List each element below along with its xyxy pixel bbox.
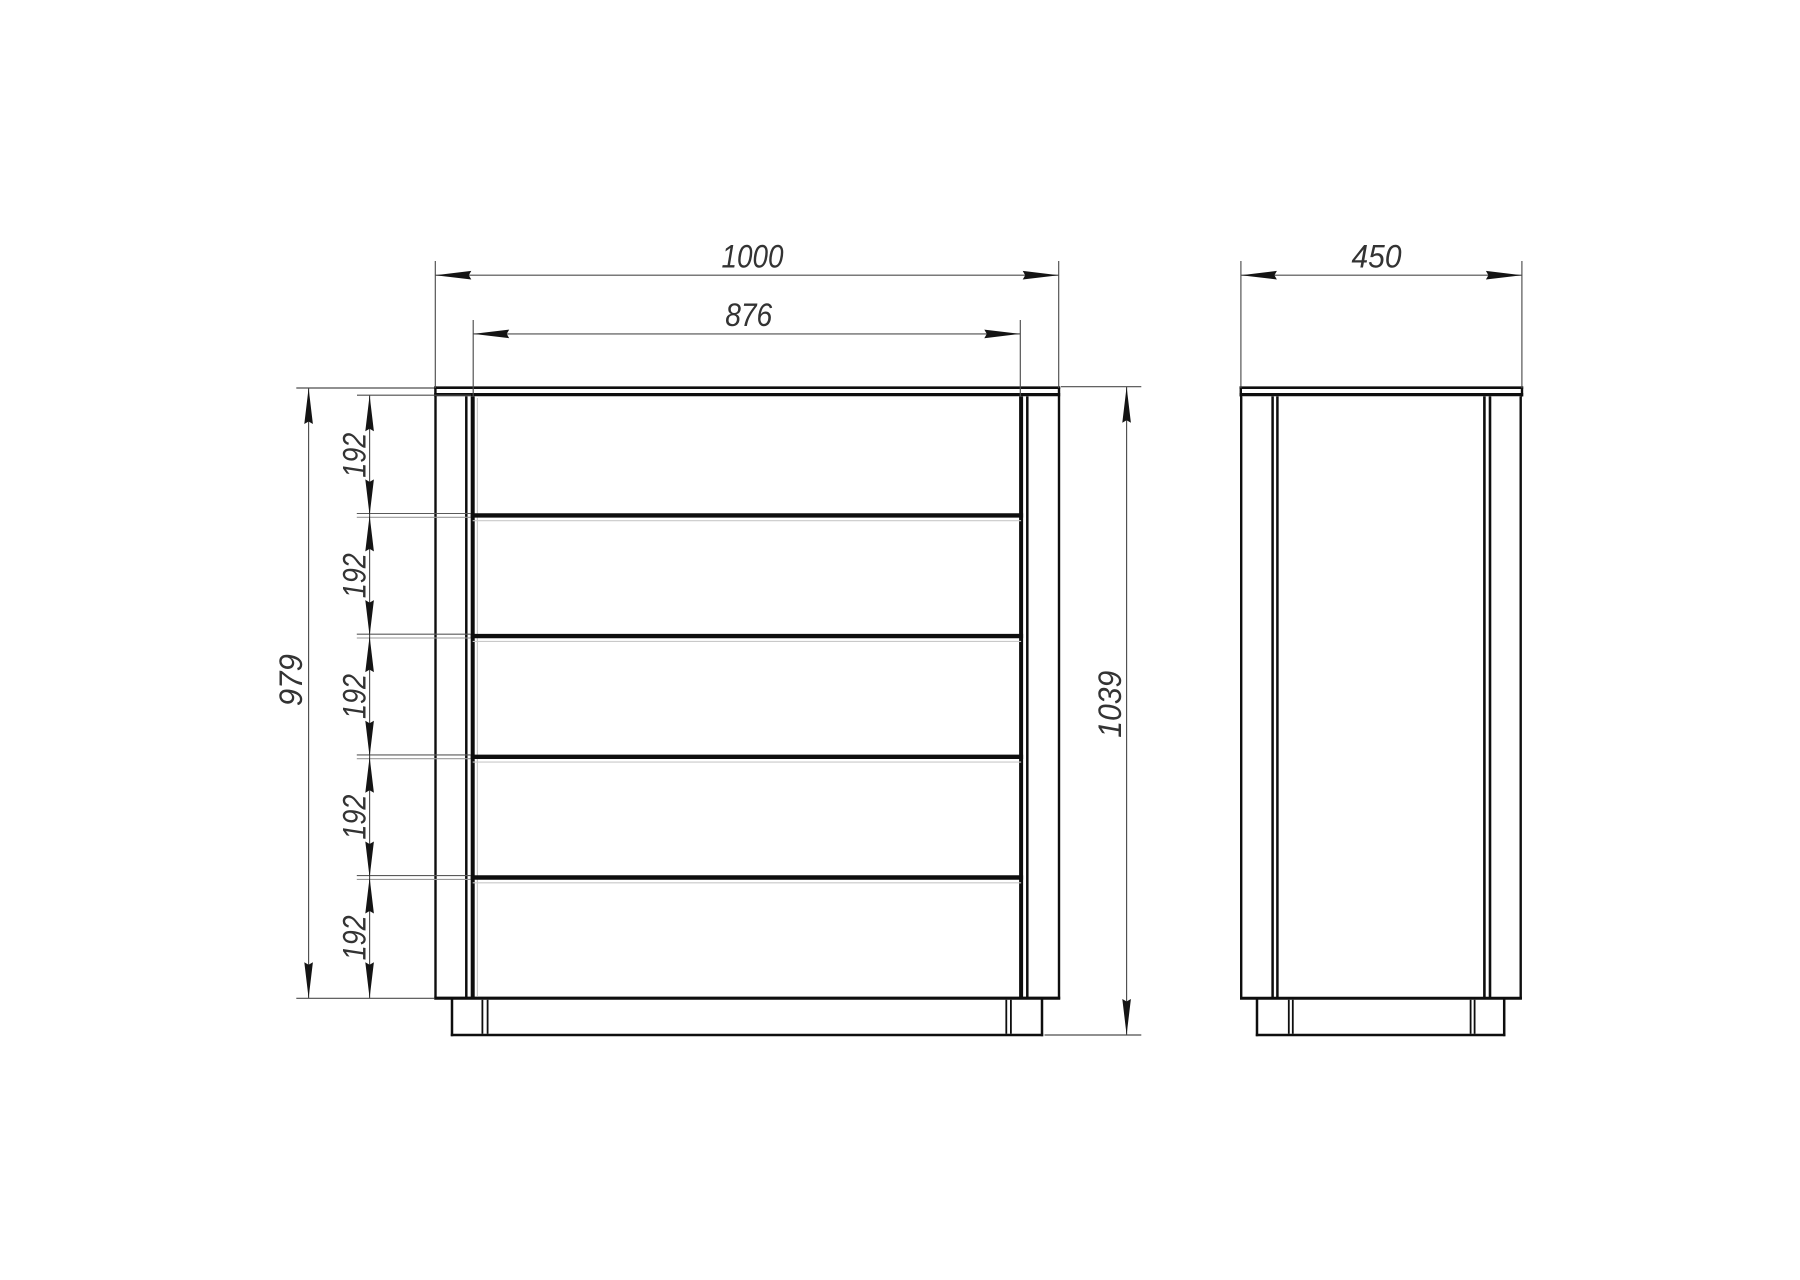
svg-text:1039: 1039 <box>1092 671 1128 738</box>
svg-text:192: 192 <box>336 674 372 719</box>
svg-text:192: 192 <box>336 915 372 960</box>
svg-text:979: 979 <box>273 654 309 706</box>
svg-text:192: 192 <box>336 433 372 478</box>
svg-text:192: 192 <box>336 553 372 598</box>
svg-text:1000: 1000 <box>722 239 784 275</box>
svg-text:450: 450 <box>1352 239 1402 275</box>
svg-text:192: 192 <box>336 794 372 839</box>
svg-text:876: 876 <box>725 297 772 333</box>
